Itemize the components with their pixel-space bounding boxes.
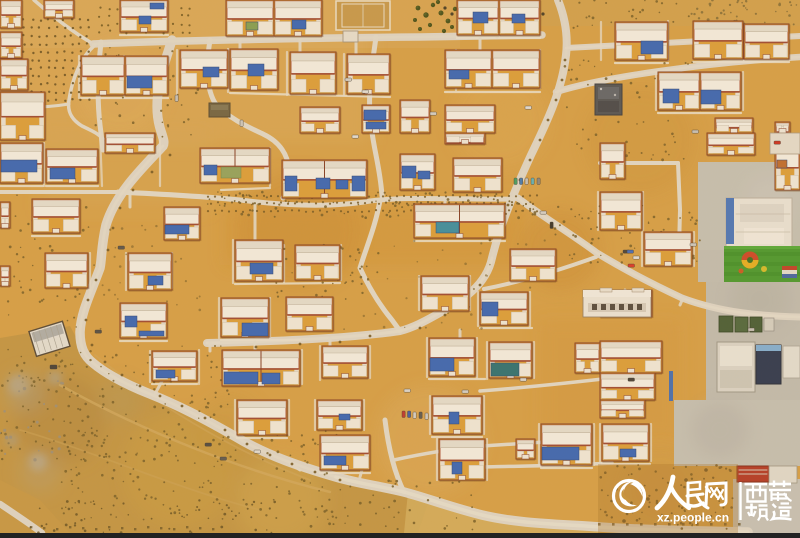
svg-text:xz.people.cn: xz.people.cn [657, 511, 729, 525]
